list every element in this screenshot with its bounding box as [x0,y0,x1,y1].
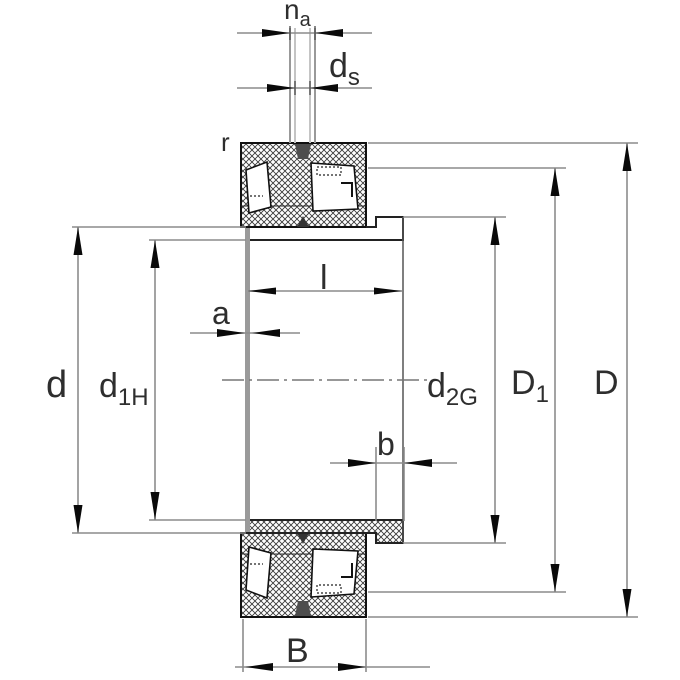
bearing-drawing-canvas: na ds r l a d d1H d2G D1 D b B [0,0,680,680]
label-r: r [221,127,230,157]
bearing-drawing: na ds r l a d d1H d2G D1 D b B [0,0,680,680]
label-b: b [377,426,395,462]
bearing-section-bottom [241,533,366,617]
label-ds: ds [329,47,360,91]
label-a: a [212,295,230,331]
label-l: l [320,259,328,297]
label-d1h: d1H [99,367,149,411]
bearing-section-top [241,143,366,227]
label-D1: D1 [511,364,549,408]
label-d2g: d2G [427,367,478,411]
lube-hole-projection-lines [290,28,315,143]
label-B: B [286,632,309,670]
label-D: D [594,364,619,402]
label-na: na [284,0,312,31]
label-d: d [46,364,67,406]
